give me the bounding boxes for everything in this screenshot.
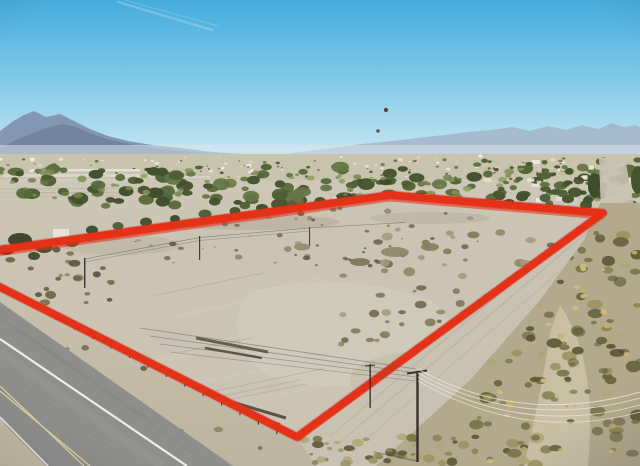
vignette (0, 0, 640, 466)
aerial-photo (0, 0, 640, 466)
aerial-photo-canvas (0, 0, 640, 466)
